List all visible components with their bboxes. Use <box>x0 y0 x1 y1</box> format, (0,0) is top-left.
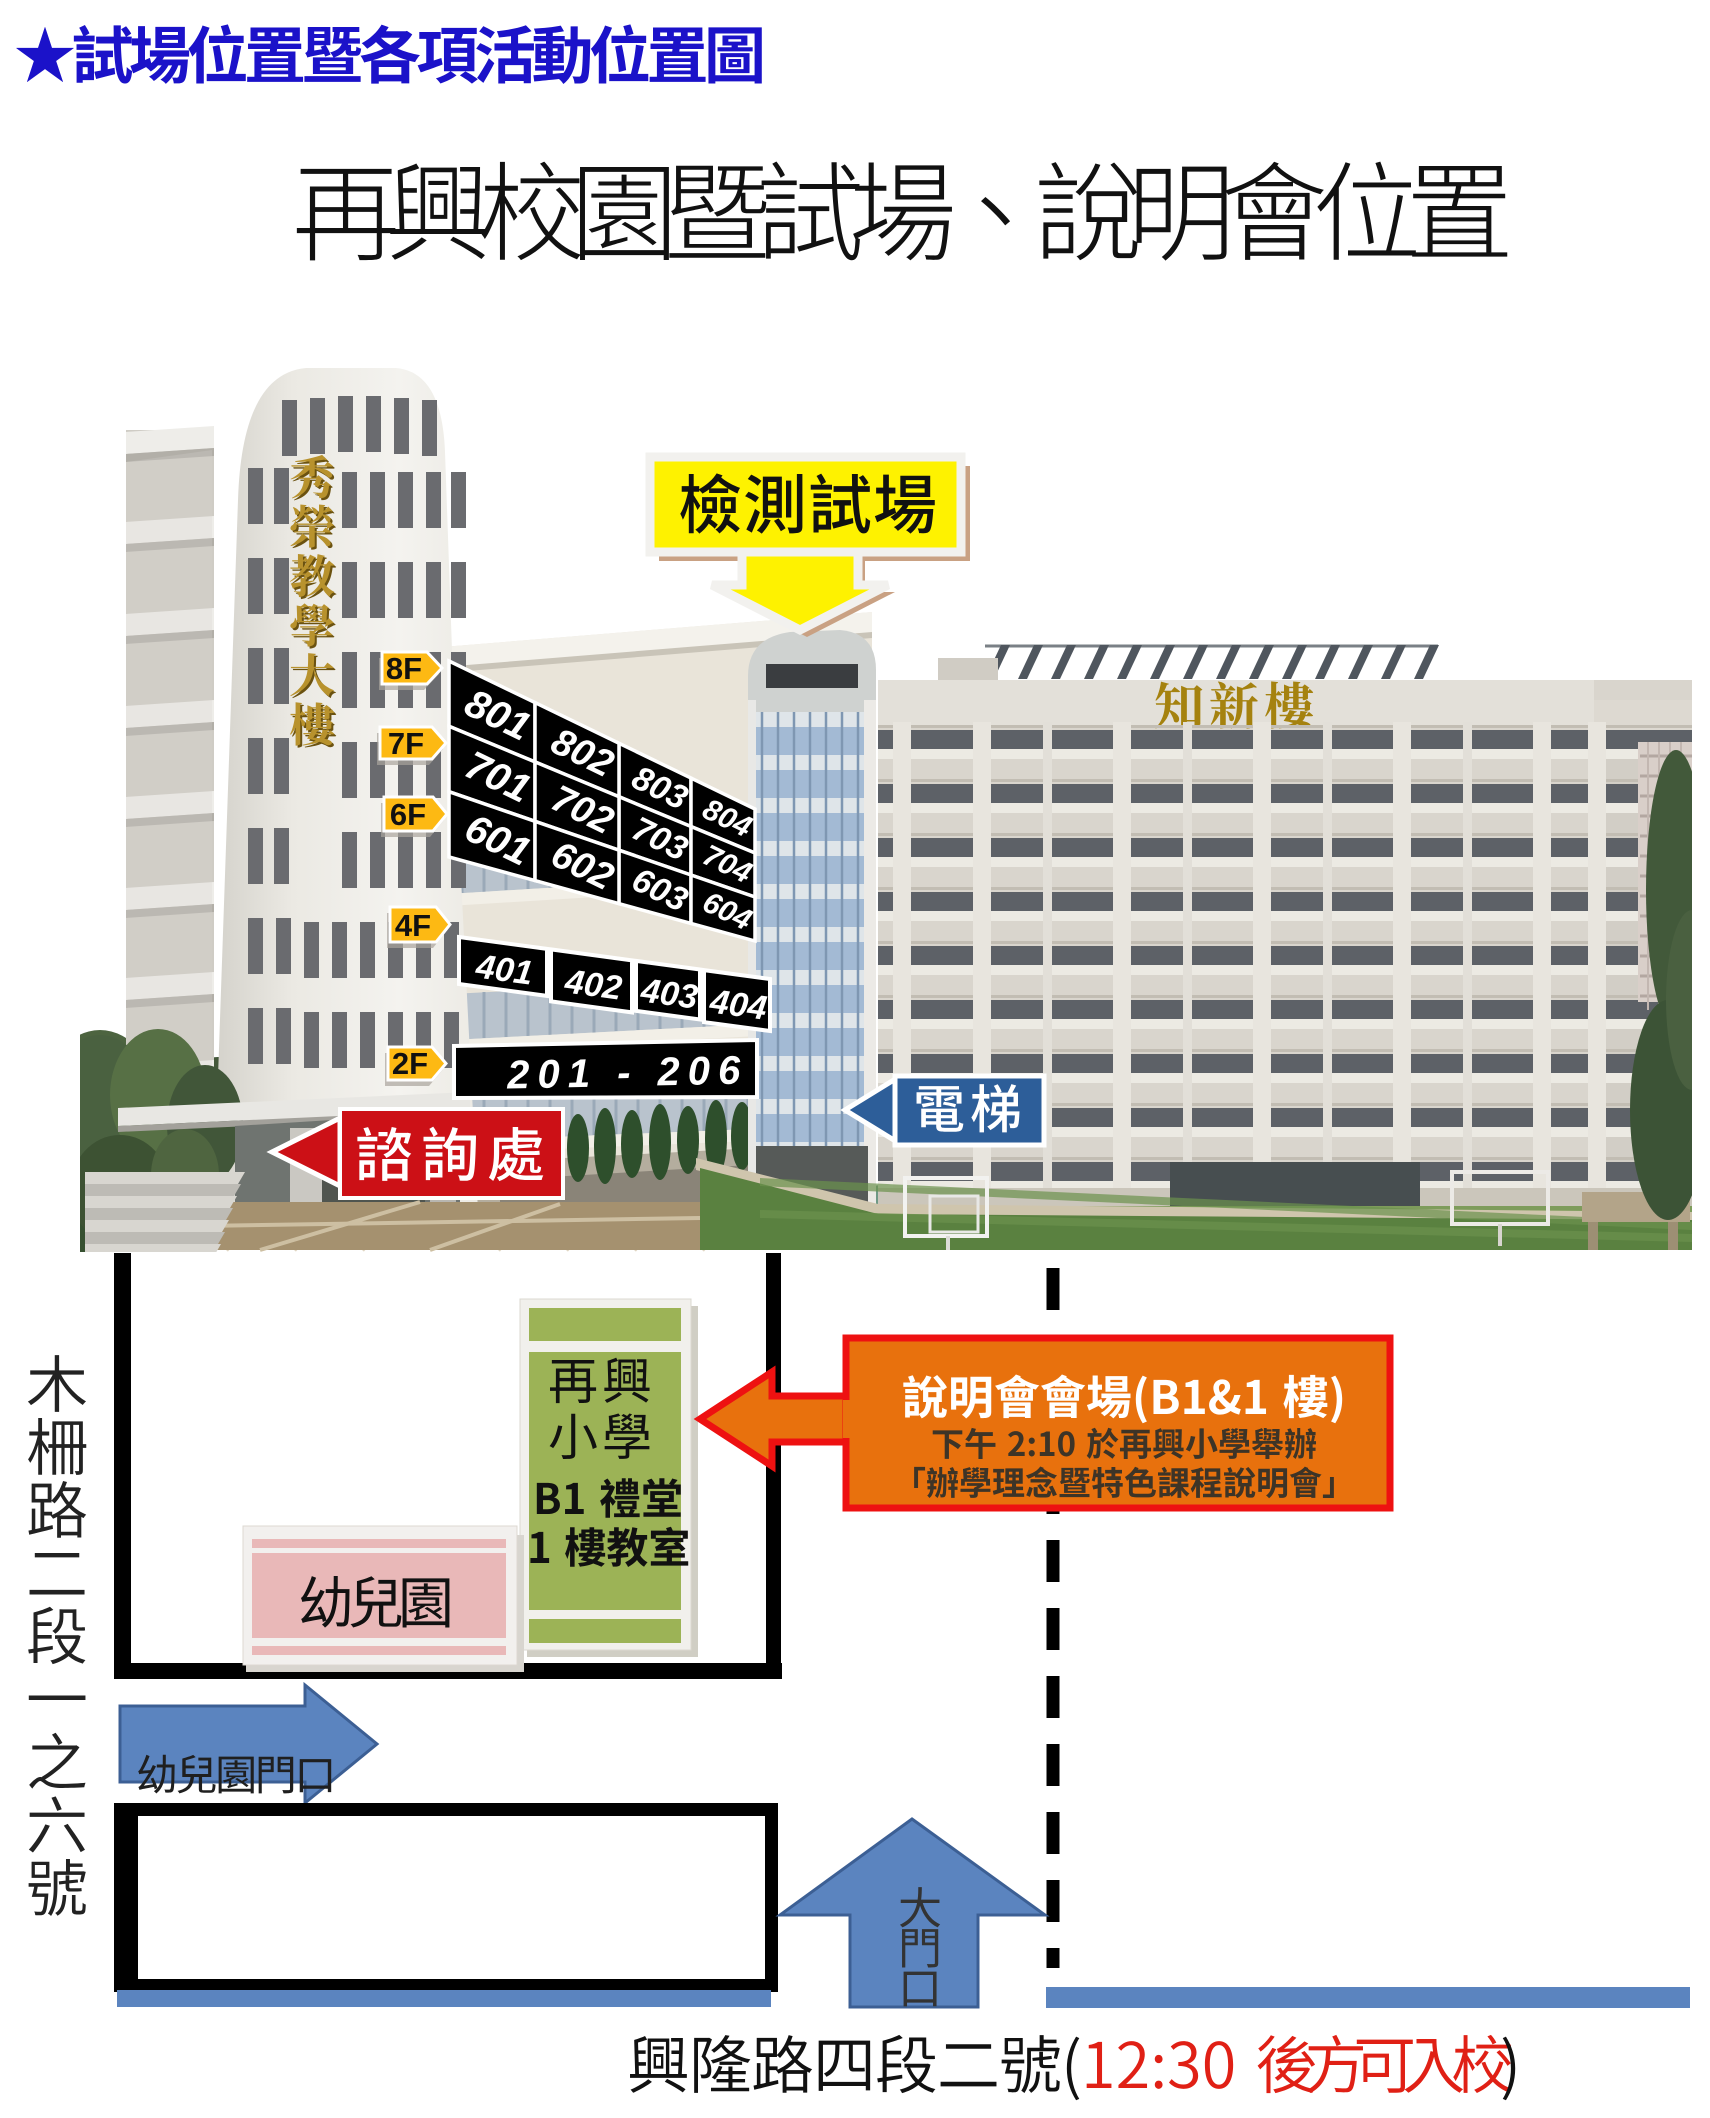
svg-text:402: 402 <box>562 962 624 1007</box>
svg-text:201 - 206: 201 - 206 <box>506 1048 749 1097</box>
svg-text:404: 404 <box>707 982 769 1027</box>
svg-text:6F: 6F <box>390 797 426 832</box>
svg-text:7F: 7F <box>388 726 424 761</box>
svg-text:403: 403 <box>638 971 700 1016</box>
svg-text:2F: 2F <box>392 1046 428 1081</box>
svg-text:8F: 8F <box>386 651 422 686</box>
svg-text:4F: 4F <box>395 908 431 943</box>
svg-text:401: 401 <box>473 947 535 992</box>
